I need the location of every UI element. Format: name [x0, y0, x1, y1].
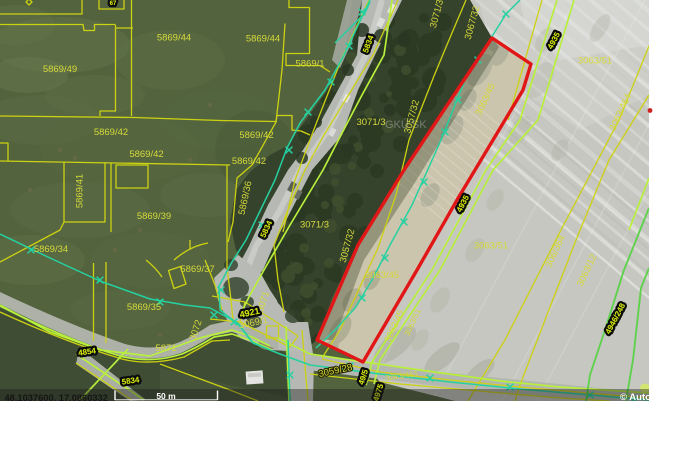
svg-text:5869/44: 5869/44: [157, 33, 191, 44]
svg-text:GKÚ SK: GKÚ SK: [385, 118, 427, 131]
svg-text:5869/42: 5869/42: [94, 127, 128, 138]
svg-text:5871: 5871: [155, 343, 176, 354]
svg-text:5869/44: 5869/44: [246, 34, 280, 45]
svg-text:5869/35: 5869/35: [127, 302, 161, 313]
svg-text:50 m: 50 m: [156, 391, 176, 401]
svg-text:5869/41: 5869/41: [75, 174, 86, 208]
svg-text:5869/39: 5869/39: [137, 211, 171, 222]
svg-text:67: 67: [110, 1, 117, 7]
svg-text:5869/42: 5869/42: [232, 156, 266, 167]
svg-text:3071/3: 3071/3: [300, 220, 329, 231]
svg-text:5869/37: 5869/37: [180, 264, 214, 275]
svg-text:3063/51: 3063/51: [474, 241, 508, 252]
svg-text:3063/51: 3063/51: [578, 56, 612, 67]
svg-text:3063/45: 3063/45: [365, 270, 399, 281]
svg-text:5869/42: 5869/42: [129, 149, 163, 160]
svg-text:5869/34: 5869/34: [34, 244, 68, 255]
svg-text:5869/1: 5869/1: [295, 59, 324, 70]
svg-text:5869/42: 5869/42: [239, 130, 273, 141]
svg-text:3071/3: 3071/3: [356, 117, 385, 128]
svg-text:5869/49: 5869/49: [43, 64, 77, 75]
